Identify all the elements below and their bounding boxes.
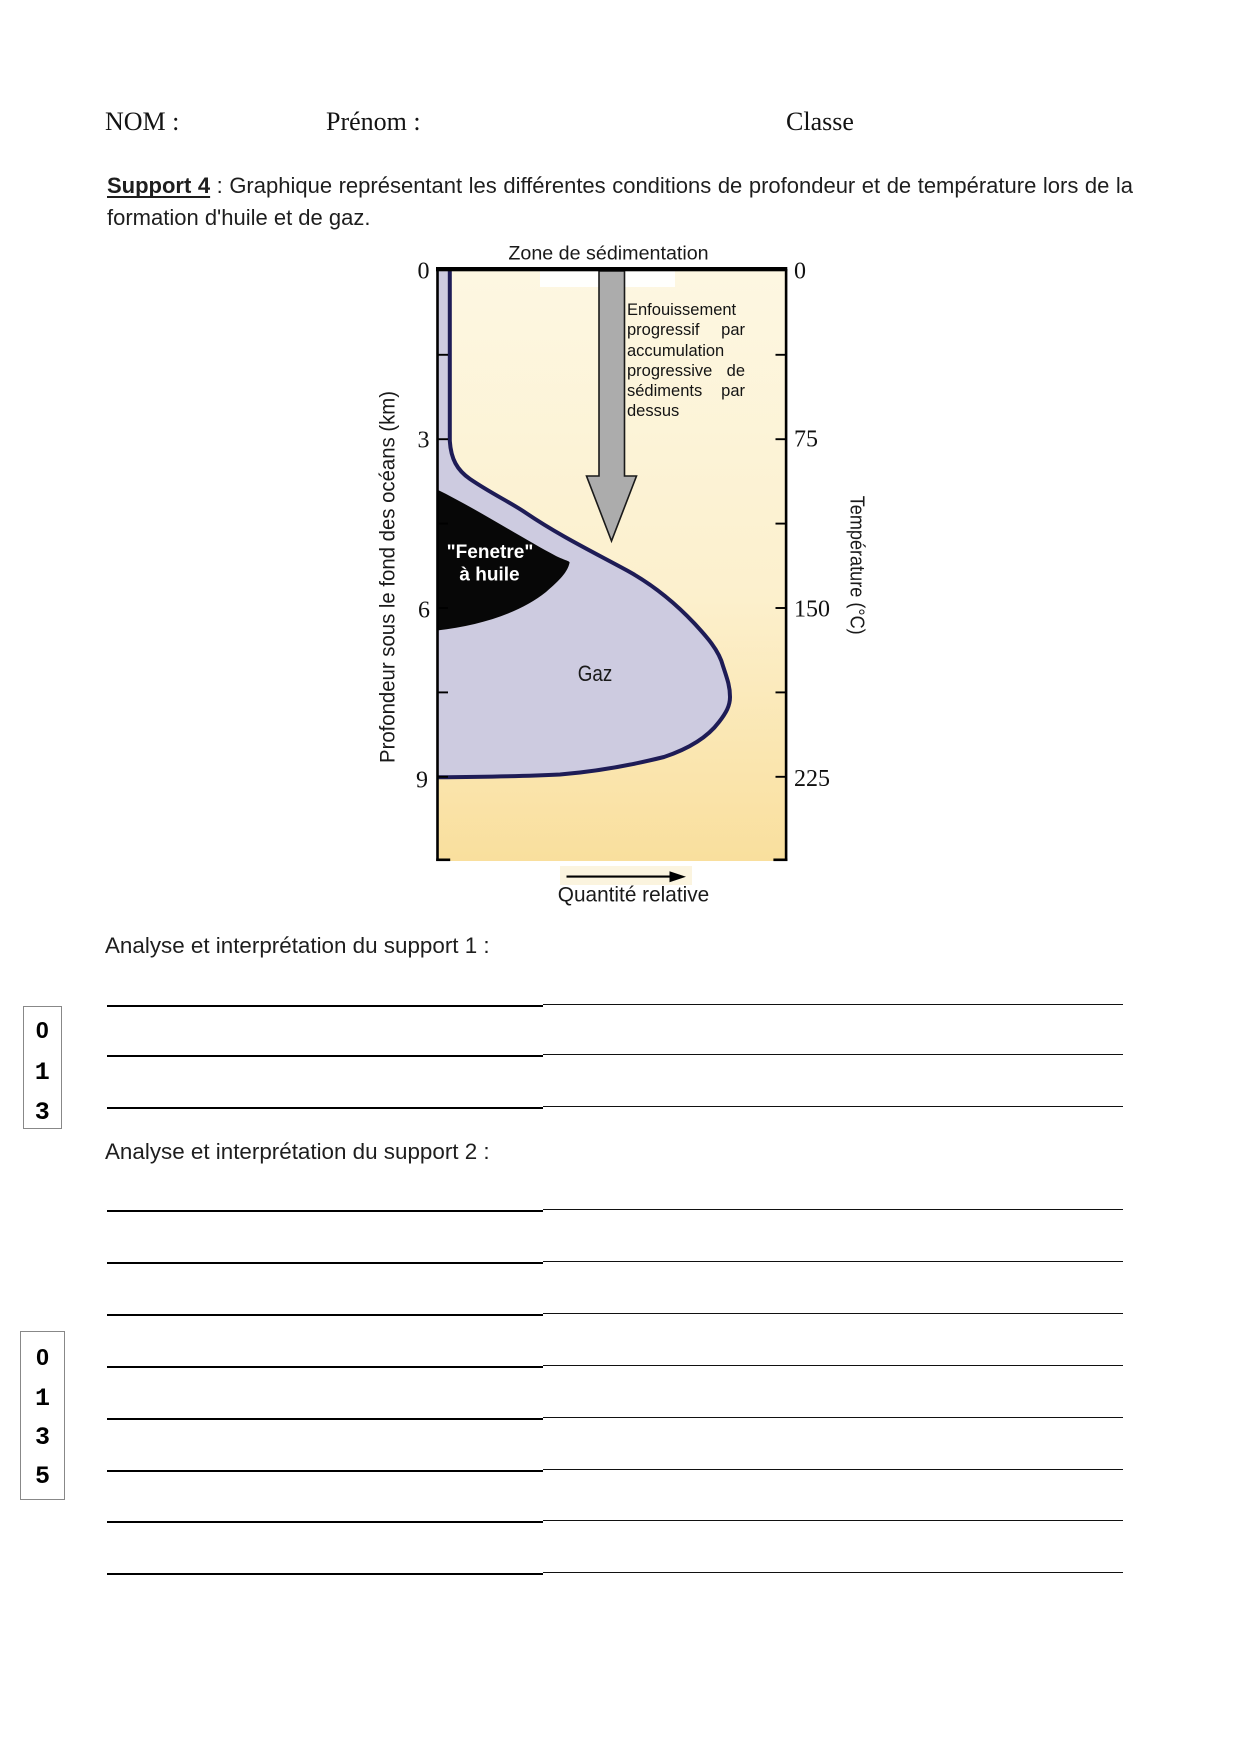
svg-text:225: 225: [794, 766, 830, 792]
svg-text:3: 3: [418, 428, 430, 454]
svg-text:à huile: à huile: [459, 565, 519, 586]
svg-text:9: 9: [416, 768, 428, 794]
svg-text:Zone de sédimentation: Zone de sédimentation: [508, 243, 708, 265]
svg-text:6: 6: [418, 598, 430, 624]
svg-text:0: 0: [418, 259, 430, 285]
svg-text:Profondeur sous le fond des oc: Profondeur sous le fond des océans (km): [377, 391, 400, 763]
svg-text:"Fenetre": "Fenetre": [447, 542, 534, 563]
svg-text:0: 0: [794, 259, 806, 285]
svg-text:Gaz: Gaz: [578, 661, 613, 686]
svg-text:Température (°C): Température (°C): [846, 496, 869, 635]
svg-text:75: 75: [794, 427, 818, 453]
svg-text:150: 150: [794, 597, 830, 623]
svg-text:Quantité relative: Quantité relative: [558, 884, 709, 907]
